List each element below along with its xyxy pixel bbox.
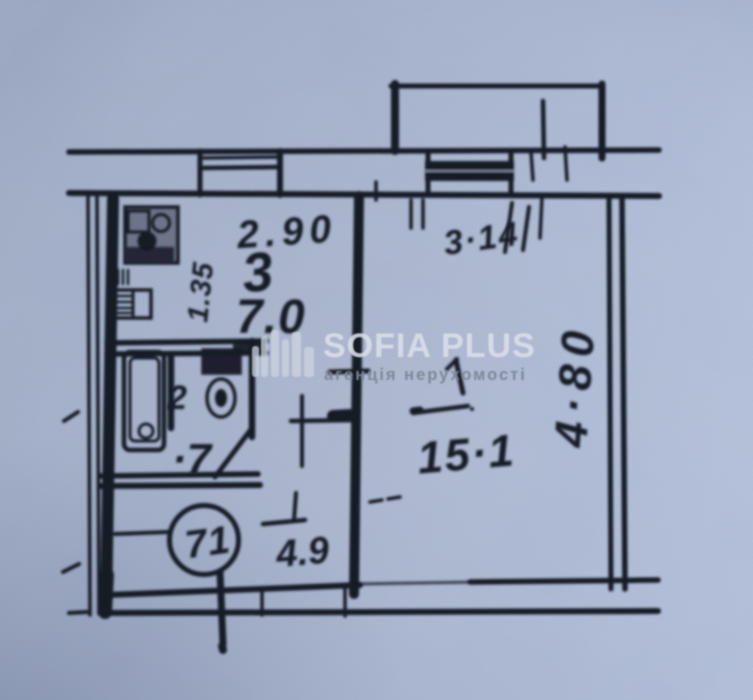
svg-text:71: 71 xyxy=(182,518,233,567)
svg-text:·7: ·7 xyxy=(172,435,214,484)
svg-text:4·80: 4·80 xyxy=(544,321,605,449)
svg-text:4.9: 4.9 xyxy=(274,530,331,577)
svg-text:1.35: 1.35 xyxy=(182,260,220,323)
svg-text:SOFIA PLUS: SOFIA PLUS xyxy=(323,327,536,365)
svg-text:2: 2 xyxy=(167,379,187,417)
svg-text:агенція нерухомості: агенція нерухомості xyxy=(324,366,527,384)
svg-text:15·1: 15·1 xyxy=(415,424,517,483)
